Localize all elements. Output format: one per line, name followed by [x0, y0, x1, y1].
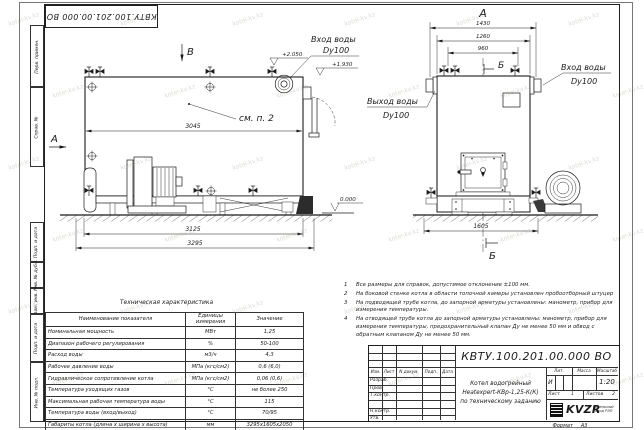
doc-number: КВТУ.100.201.00.000 ВО: [455, 346, 618, 367]
valve-icon: [440, 66, 449, 76]
tech-cell: Максимальная рабочая температура воды: [46, 396, 186, 408]
valve-icon: [427, 188, 436, 198]
tech-table-row: Номинальная мощностьМВт1,25: [46, 327, 304, 339]
tech-col-header: Наименование показателя: [46, 313, 186, 327]
tech-cell: Номинальная мощность: [46, 327, 186, 339]
tech-table: Наименование показателя Единицы измерени…: [45, 312, 304, 430]
tech-cell: 50-100: [236, 338, 304, 350]
level-zero-text: 0.000: [340, 197, 356, 203]
note-text: На отводящей трубе котла до запорной арм…: [356, 316, 616, 339]
tech-cell: МПа (кгс/см2): [186, 373, 236, 385]
tech-cell: Габариты котла (длина х ширина х высота): [46, 419, 186, 430]
note-number: 3: [344, 300, 350, 316]
tech-cell: Температура уходящих газов: [46, 384, 186, 396]
inlet-water-dn-front: Dy100: [571, 77, 597, 86]
ground-hatch: [60, 216, 332, 222]
description-line: Котел водогрейный: [470, 380, 531, 389]
drawing-sheet: Перв. примен. Справ. № Подп. и дата Инв.…: [0, 0, 644, 430]
col-ndokum: N докум.: [396, 367, 422, 377]
note-item: 3На подводящей трубе котла, до запорной …: [344, 300, 616, 316]
zero-level-mark: 0.000: [322, 197, 363, 213]
valve-icon: [451, 66, 460, 76]
tech-characteristics: Техническая характеристика Наименование …: [45, 299, 288, 430]
tech-table-row: Габариты котла (длина х ширина х высота)…: [46, 419, 304, 430]
format-word: Формат: [553, 423, 573, 429]
outlet-water-dn: Dy100: [383, 111, 409, 120]
description-line: Heatexpert-КВр-1,25-К(К): [462, 389, 538, 398]
tech-cell: Диапазон рабочего регулирования: [46, 338, 186, 350]
section-marker-v: В: [187, 47, 194, 58]
dim-960: 960: [478, 46, 489, 52]
kvzr-logo-icon: [550, 403, 563, 417]
col-podp: Подп.: [422, 367, 440, 377]
tech-col-header: Единицы измерения: [186, 313, 236, 327]
inspection-hatch: [503, 93, 520, 107]
dim-3045: 3045: [185, 123, 200, 130]
tech-cell: Гидравлическое сопротивление котла: [46, 373, 186, 385]
row-nkontr: Н.контр.: [370, 408, 391, 416]
dim-3295: 3295: [187, 240, 202, 247]
section-marker-b-bottom: Б: [489, 251, 496, 262]
note-text: На подводящей трубе котла, до запорной а…: [356, 300, 616, 316]
tech-cell: 1,25: [236, 327, 304, 339]
col-list: Лист: [382, 367, 396, 377]
row-utv: Утв.: [370, 415, 380, 423]
tech-table-row: Рабочее давление водыМПа (кгс/см2)0,6 (6…: [46, 361, 304, 373]
tech-cell: 4,3: [236, 350, 304, 362]
boiler-side-view: см. п. 2 3045 В А +2.050 +1.930 Вход вод…: [49, 35, 359, 251]
lit-header: Лит.: [546, 367, 572, 375]
tech-cell: МПа (кгс/см2): [186, 361, 236, 373]
scale-value: 1:20: [596, 375, 618, 390]
tech-cell: Расход воды: [46, 350, 186, 362]
mass-header: Масса: [572, 367, 596, 375]
tech-table-row: Гидравлическое сопротивление котлаМПа (к…: [46, 373, 304, 385]
section-marker-a: А: [50, 134, 58, 145]
tech-table-row: Температура уходящих газов°Сне более 250: [46, 384, 304, 396]
scale-header: Масштаб: [596, 367, 618, 375]
tech-cell: °С: [186, 408, 236, 420]
lit-value: И: [546, 375, 555, 390]
boiler-front-view: А 1430 1260 960 Б: [367, 7, 611, 262]
tech-cell: 115: [236, 396, 304, 408]
note-text: На боковой стенке котла в области топочн…: [356, 291, 613, 299]
note-item: 4На отводящей трубе котла до запорной ар…: [344, 316, 616, 339]
tech-cell: 3295х1605х2050: [236, 419, 304, 430]
company-name: котельный завод РЭП: [593, 405, 619, 414]
note-text: Все размеры для справок, допустимое откл…: [356, 282, 530, 290]
dim-3125: 3125: [185, 226, 200, 233]
boiler-base: [426, 196, 538, 215]
tech-cell: 70/95: [236, 408, 304, 420]
product-description: Котел водогрейный Heatexpert-КВр-1,25-К(…: [456, 368, 545, 419]
inlet-flange: [530, 77, 541, 94]
level-mark-1930: +1.930: [332, 62, 353, 68]
view-label-a: А: [478, 7, 487, 20]
notes-list: 1Все размеры для справок, допустимое отк…: [344, 282, 616, 341]
dim-1430: 1430: [476, 21, 490, 27]
tech-table-row: Диапазон рабочего регулирования%50-100: [46, 338, 304, 350]
sheet-label: Лист: [548, 390, 568, 399]
format-value: А3: [581, 423, 588, 429]
note-item: 2На боковой стенке котла в области топоч…: [344, 291, 616, 299]
row-razrab: Разраб.: [370, 377, 388, 385]
row-prov: Пров.: [370, 385, 383, 393]
col-data: Дата: [440, 367, 455, 377]
tech-table-title: Техническая характеристика: [45, 299, 288, 312]
format-label: Формат А3: [520, 423, 620, 429]
tech-cell: 0,6 (6,0): [236, 361, 304, 373]
tech-cell: м3/ч: [186, 350, 236, 362]
furnace-door: [456, 153, 510, 196]
tech-cell: не более 250: [236, 384, 304, 396]
note-number: 2: [344, 291, 350, 299]
inlet-water-label-front: Вход воды: [561, 63, 606, 72]
description-line: по техническому заданию: [460, 398, 541, 407]
title-block: КВТУ.100.201.00.000 ВО Изм. Лист N докум…: [368, 345, 620, 422]
level-mark-2050: +2.050: [282, 52, 303, 58]
inlet-water-dn: Dy100: [323, 46, 349, 55]
valve-icon: [268, 67, 277, 77]
tech-table-header-row: Наименование показателя Единицы измерени…: [46, 313, 304, 327]
valve-icon: [96, 67, 105, 77]
tech-cell: Рабочее давление воды: [46, 361, 186, 373]
note-number: 1: [344, 282, 350, 290]
valve-icon: [206, 67, 215, 77]
dim-1260: 1260: [476, 34, 490, 40]
side-outlet-pipe: [303, 87, 335, 137]
sheets-label: Листов: [586, 390, 608, 399]
outlet-water-label: Выход воды: [367, 97, 418, 106]
note-item: 1Все размеры для справок, допустимое отк…: [344, 282, 616, 290]
note-number: 4: [344, 316, 350, 339]
valve-icon: [532, 188, 541, 198]
tech-table-row: Максимальная рабочая температура воды°С1…: [46, 396, 304, 408]
tech-col-header: Значение: [236, 313, 304, 327]
section-marker-b-top: Б: [498, 61, 504, 71]
tech-cell: мм: [186, 419, 236, 430]
tech-cell: МВт: [186, 327, 236, 339]
tech-cell: 0,06 (0,6): [236, 373, 304, 385]
inlet-water-label: Вход воды: [311, 35, 356, 44]
col-izm: Изм.: [369, 367, 382, 377]
outlet-flange: [426, 77, 437, 94]
row-tkontr: Т.контр.: [370, 392, 390, 400]
callout-see-note: см. п. 2: [239, 114, 274, 124]
tech-cell: °С: [186, 396, 236, 408]
tech-cell: °С: [186, 384, 236, 396]
tech-table-row: Расход водым3/ч4,3: [46, 350, 304, 362]
valve-icon: [85, 67, 94, 77]
ground-hatch: [413, 216, 598, 222]
sheets-number: 2: [612, 390, 620, 399]
valve-icon: [511, 66, 520, 76]
tech-table-row: Температура воды (вход/выход)°С70/95: [46, 408, 304, 420]
tech-cell: %: [186, 338, 236, 350]
dim-1605: 1605: [473, 223, 488, 230]
tech-cell: Температура воды (вход/выход): [46, 408, 186, 420]
sheet-number: 1: [571, 390, 581, 399]
company-line: завод РЭП: [593, 409, 619, 414]
